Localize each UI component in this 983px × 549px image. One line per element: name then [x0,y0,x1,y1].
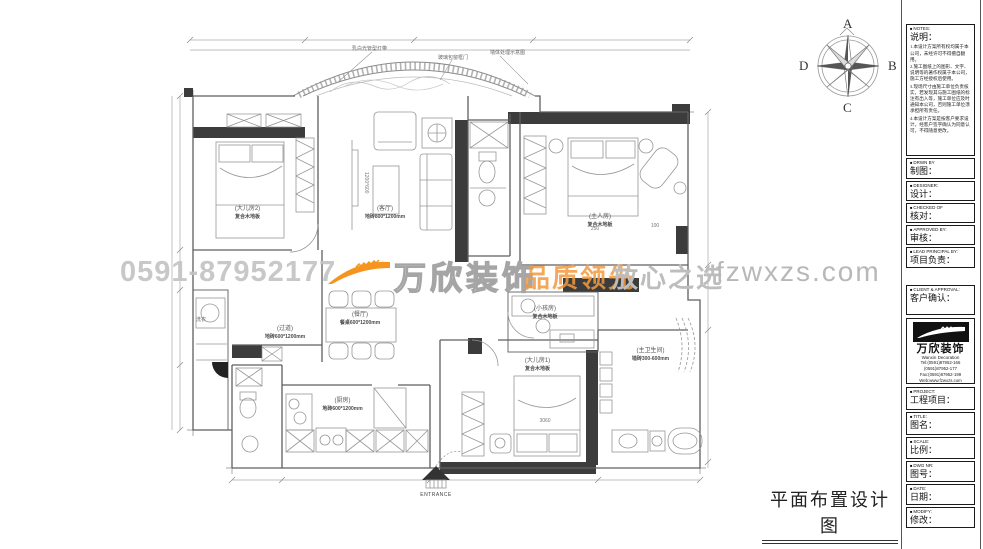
wardrobe-icon [296,138,314,212]
notes-item: 1.本设计方案所有权均属于本公司，未经许可不得擅自翻用。 [910,44,971,63]
washer-icon [196,298,227,360]
bedside-lamp-icon [549,139,563,153]
room-label-hallway: (过道)地砖600*1200mm [252,326,318,340]
nightstand-icon [490,434,511,453]
compass-icon [812,30,884,102]
titleblock-project: PROJECT:工程项目： [906,387,975,410]
sofa-icon [420,154,452,230]
titleblock-logo: 万欣装饰 Wanxin Decoration Tel:(0591)87952-1… [906,318,975,384]
small-bath-icon [236,368,262,452]
titleblock-approved: APPROVED BY:审核： [906,225,975,245]
room-label-kitchen: (厨房)地砖600*1200mm [300,398,385,412]
entrance-label: ENTRANCE [406,492,466,498]
watermark-logo-swoosh-icon [326,258,392,286]
notes-item: 4.本设计方案是按客户要求设计，经客户签字确认为同意认可，不得随意更改。 [910,116,971,135]
logo-brand-name: 万欣装饰 [910,343,971,355]
watermark-phone: 0591-87952177 [120,256,336,289]
annotation-arc-right: 墙体处理示意图 [490,49,525,56]
compass-west-label: D [799,58,808,74]
annotation-arc-left: 乳白光管型灯带 [352,45,387,52]
bedside-lamp-icon [639,139,653,153]
room-label-bedroom1: (大儿房1)复合木地板 [500,358,575,372]
sidebar-separator [901,0,902,549]
titleblock-client-approval: CLIENT & APPROVAL:客户确认： [906,285,975,315]
notes-item: 2.施工图纸上的图形、文字、说明等的著作权属于本公司，施工方经授权后使用。 [910,64,971,83]
logo-web: Web:www.fzwxzs.com [910,378,971,384]
titleblock-dwg-nr: DWG NR:图号： [906,461,975,482]
door-arc [290,224,318,252]
armchair-icon [374,112,416,150]
wardrobe-icon [462,392,484,456]
compass-south-label: C [843,100,852,116]
titleblock-date: DATE:日期： [906,484,975,505]
compass-east-label: B [888,58,897,74]
titleblock-checked: CHECKED OF核对： [906,203,975,223]
room-label-dining: (餐厅)餐桌600*1200mm [320,312,400,326]
annotation-laundry: 洗衣 [196,316,206,323]
lounge-chair-icon [636,144,686,194]
titleblock-notes: NOTES: 说明： 1.本设计方案所有权均属于本公司，未经许可不得擅自翻用。 … [906,24,975,156]
compass-tick [838,27,856,37]
room-label-bedroom2: (大儿房2)复合木地板 [205,206,290,220]
drawing-sheet: (大儿房2)复合木地板 (客厅)地砖800*1200mm (主人房)复合木地板 … [0,0,983,549]
bathtub-icon [600,318,702,454]
room-label-kids: (小孩房)复合木地板 [512,306,578,320]
toilet-icon [470,122,508,206]
wardrobe-icon [524,136,546,214]
titleblock-designer: DESIGNER:设计： [906,181,975,201]
dimension-coffee-table: 1200*600 [363,172,369,193]
sheet-right-edge [980,0,981,549]
dimension-master-b: 100 [640,223,670,229]
titleblock-modify: MODIFY:修改： [906,507,975,528]
bed-icon [568,138,638,216]
dimension-bed: 3060 [525,418,565,424]
drawing-title: 平面布置设计图 [762,486,898,544]
titleblock-scale: SCALE:比例： [906,437,975,459]
company-logo-icon [913,322,969,342]
bed-icon [514,376,580,456]
watermark-slogan-right: 放心之选 [612,258,724,295]
annotation-arc-mid: 玻璃包窗框门 [438,54,468,61]
room-label-living: (客厅)地砖800*1200mm [350,206,420,220]
column-icon [212,362,228,378]
watermark-brand: 万欣装饰 [394,253,538,299]
titleblock-principal: LEAD PRINCIPAL BY:项目负责： [906,247,975,268]
watermark-website: fzwxzs.com [716,256,881,288]
titleblock-title: TITLE:图名： [906,412,975,435]
dimension-master-a: 250 [580,226,610,232]
bed-icon [216,142,284,238]
titleblock-drawn-by: DRWN BY制图： [906,158,975,179]
notes-item: 3.现场尺寸由施工单位负责核实，若发现其与施工图纸的标注有出入等，施工单位应及时… [910,84,971,115]
arc-balcony [293,52,535,96]
fan-table-icon [422,118,452,148]
room-label-master-bath: (主卫生间)墙砖300-600mm [608,348,693,362]
